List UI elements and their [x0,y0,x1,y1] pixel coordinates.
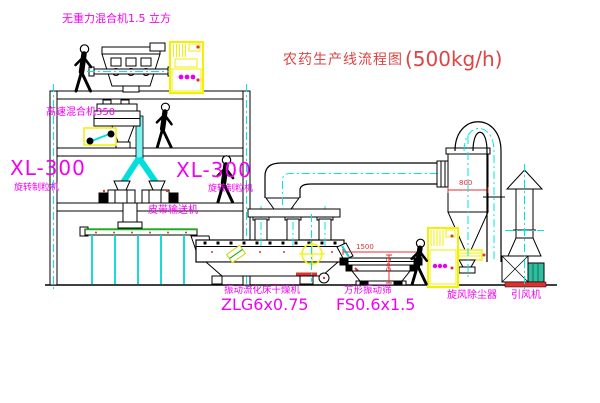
cabinet-knobs [179,75,184,80]
control-cabinet-top [170,42,203,93]
label-fan: 引风机 [511,291,541,301]
label-sieve-model: FS0.6x1.5 [336,297,415,313]
y-chute [114,158,165,190]
label-granulator-right-model: XL-300 [176,160,252,180]
fan-motor [528,263,544,282]
label-dryer-model: ZLG6x0.75 [221,297,309,313]
diagram-title: 农药生产线流程图(500kg/h) [283,49,502,69]
label-high-speed-mixer: 高速混合机350 [46,108,115,118]
dimension-cyclone-diameter: 800 [459,180,472,187]
label-belt-conveyor: 皮带输送机 [148,206,198,216]
label-granulator-left-name: 旋转制粒机 [14,184,59,193]
label-granulator-right-name: 旋转制粒机 [208,185,253,194]
gravity-free-mixer [87,43,176,92]
granulator-right [142,190,178,203]
diagram-title-text: 农药生产线流程图 [283,52,403,68]
dimension-sieve-length: 1500 [356,244,374,251]
label-granulator-left-model: XL-300 [10,158,86,178]
person-figure-floor2 [157,103,172,147]
dimension-sieve-height: 546 [384,258,391,271]
granulator-left [99,190,135,203]
pesticide-line-flow-diagram: 农药生产线流程图(500kg/h) 无重力混合机1.5 立方 高速混合机350 … [0,0,600,403]
belt-conveyor [80,227,197,284]
diagram-title-capacity: (500kg/h) [405,47,502,71]
label-gravity-free-mixer: 无重力混合机1.5 立方 [62,13,171,24]
label-cyclone: 旋风除尘器 [447,291,497,301]
control-cabinet-bottom [428,228,458,287]
